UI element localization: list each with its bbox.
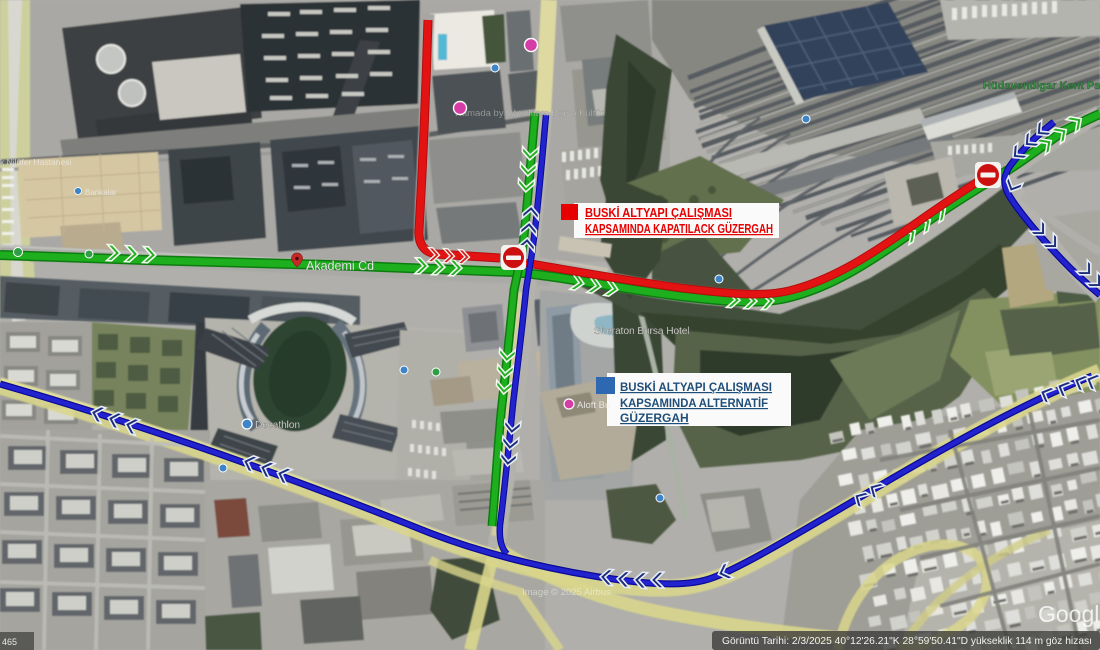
svg-text:KAPSAMINDA KAPATILACK GÜZERGAH: KAPSAMINDA KAPATILACK GÜZERGAH (585, 221, 773, 236)
svg-text:BUSKİ ALTYAPI ÇALIŞMASI: BUSKİ ALTYAPI ÇALIŞMASI (620, 379, 772, 394)
svg-text:Google: Google (1038, 601, 1100, 627)
svg-text:Aloft Bu: Aloft Bu (577, 400, 610, 411)
svg-text:Hüdavendigar Kent Pa: Hüdavendigar Kent Pa (983, 80, 1100, 92)
svg-text:Sheraton Bursa Hotel: Sheraton Bursa Hotel (594, 326, 690, 337)
svg-text:Decathlon: Decathlon (255, 420, 300, 431)
svg-text:Image © 2025 Airbus: Image © 2025 Airbus (522, 587, 611, 598)
svg-text:KAPSAMINDA ALTERNATİF: KAPSAMINDA ALTERNATİF (620, 395, 768, 410)
svg-text:465: 465 (2, 637, 17, 647)
svg-text:k Nilüfer Hastanesi: k Nilüfer Hastanesi (0, 157, 71, 167)
svg-text:BUSKİ ALTYAPI ÇALIŞMASI: BUSKİ ALTYAPI ÇALIŞMASI (585, 205, 732, 220)
svg-text:Bankalar: Bankalar (85, 188, 117, 197)
svg-text:Ramada by Wyndham Bursa Kültür: Ramada by Wyndham Bursa Kültür (455, 108, 604, 119)
svg-text:Akademi Cd: Akademi Cd (306, 259, 374, 273)
svg-text:GÜZERGAH: GÜZERGAH (620, 410, 689, 425)
svg-text:Görüntü Tarihi: 2/3/2025 40°: Görüntü Tarihi: 2/3/2025 40°12'26.21"K 2… (722, 635, 1092, 647)
